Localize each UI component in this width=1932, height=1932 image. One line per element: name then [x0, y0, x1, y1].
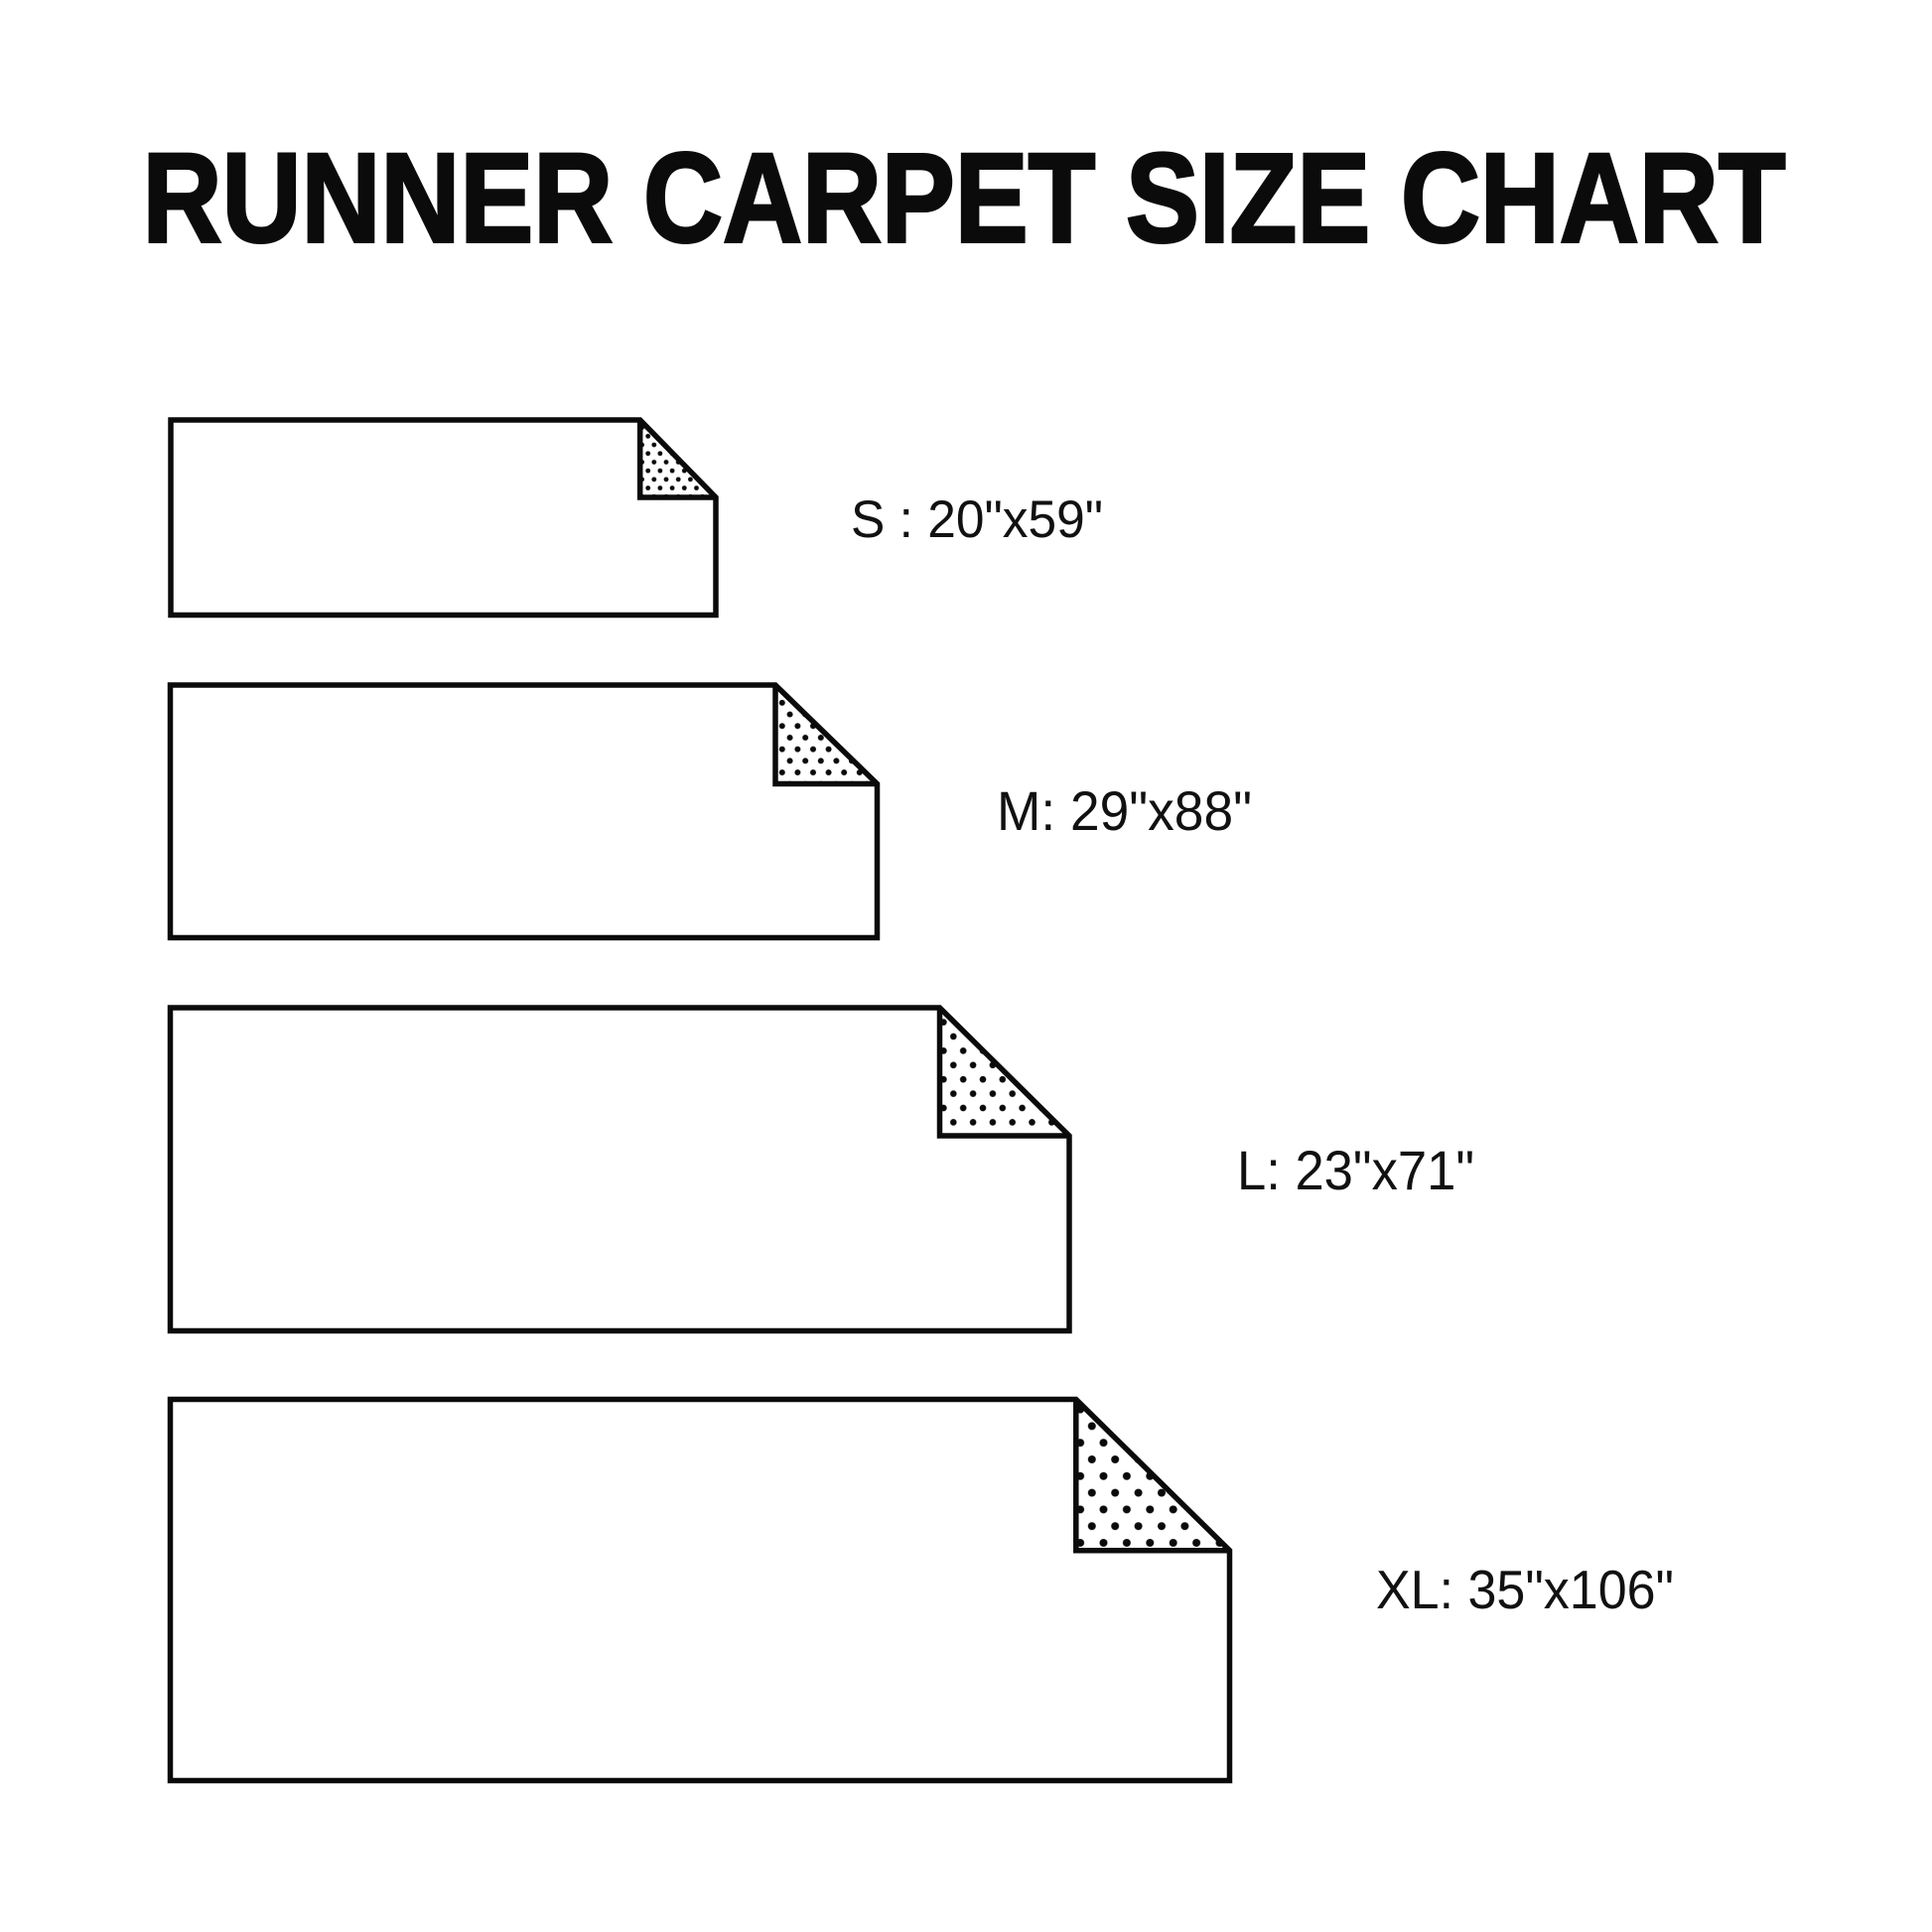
- svg-text:L: 23"x71": L: 23"x71": [1237, 1140, 1474, 1201]
- svg-text:XL: 35"x106": XL: 35"x106": [1376, 1560, 1674, 1620]
- svg-text:M: 29"x88": M: 29"x88": [997, 780, 1252, 842]
- svg-text:S : 20"x59": S : 20"x59": [851, 490, 1103, 549]
- svg-text:RUNNER CARPET SIZE CHART: RUNNER CARPET SIZE CHART: [143, 128, 1786, 270]
